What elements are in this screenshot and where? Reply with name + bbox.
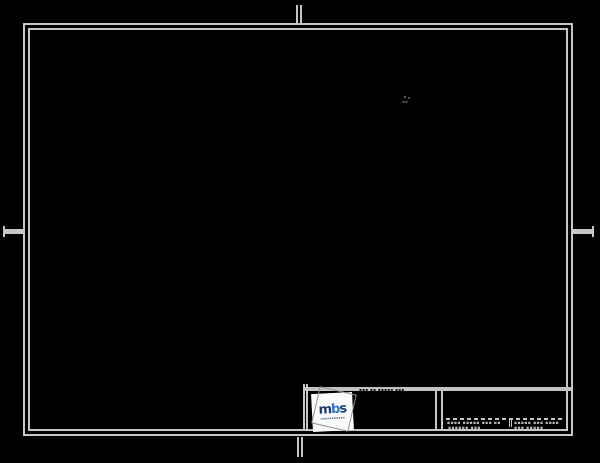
drawing-area bbox=[31, 31, 565, 428]
divider-stroke bbox=[509, 420, 510, 427]
fold-mark-right-cap bbox=[592, 226, 594, 237]
fold-mark-stroke bbox=[301, 437, 303, 457]
info-box-field: ▪▪▪▪▪▪ ▪▪▪ bbox=[448, 426, 481, 431]
info-box-field-divider bbox=[509, 420, 512, 427]
divider-stroke bbox=[511, 420, 512, 427]
drawing-sheet: ▪▪▪ ▪▪ ▪▪▪▪▪ ▪▪▪ mbs ▪▪▪▪▪▪▪▪▪▪▪ ▪▪▪▪ ▪▪… bbox=[0, 0, 600, 463]
faint-mark-icon bbox=[402, 95, 410, 104]
info-box-field: ▪▪▪ ▪▪▪▪▪ bbox=[514, 426, 543, 431]
info-box-divider bbox=[435, 391, 437, 431]
info-box-divider bbox=[441, 391, 443, 431]
faint-dash bbox=[402, 101, 408, 103]
fold-mark-left-cap bbox=[3, 226, 5, 237]
fold-mark-right bbox=[572, 229, 593, 234]
mbs-logo: mbs ▪▪▪▪▪▪▪▪▪▪▪ bbox=[305, 384, 360, 436]
faint-dot bbox=[404, 96, 406, 98]
info-box-dashed-separator bbox=[446, 418, 565, 420]
title-block-header-text: ▪▪▪ ▪▪ ▪▪▪▪▪ ▪▪▪ bbox=[359, 387, 404, 392]
fold-mark-left bbox=[3, 229, 24, 234]
fold-mark-stroke bbox=[297, 437, 299, 457]
fold-mark-stroke bbox=[300, 5, 302, 23]
fold-mark-top bbox=[296, 5, 302, 23]
fold-mark-stroke bbox=[296, 5, 298, 23]
faint-dot bbox=[408, 97, 410, 99]
fold-mark-bottom bbox=[297, 437, 303, 457]
